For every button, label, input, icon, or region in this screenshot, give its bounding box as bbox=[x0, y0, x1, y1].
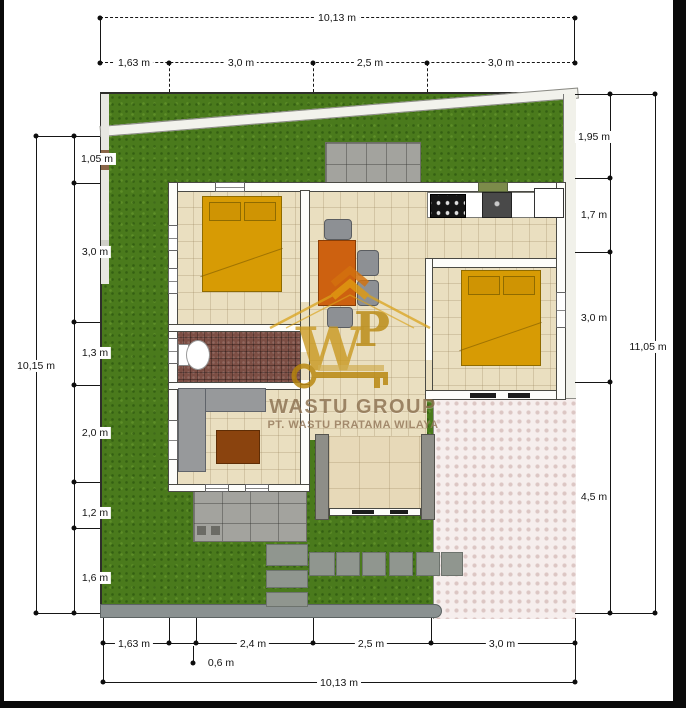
dim-dot bbox=[72, 181, 77, 186]
dim-label: 3,0 m bbox=[225, 57, 257, 69]
floor-plan-canvas: W P WASTU GROUP PT. WASTU PRATAMA WILAYA… bbox=[0, 0, 686, 708]
dim-ext bbox=[169, 618, 170, 643]
window-tick bbox=[390, 510, 408, 514]
dim-label: 3,0 m bbox=[485, 57, 517, 69]
dim-dot bbox=[98, 61, 103, 66]
terrace-mat bbox=[211, 526, 220, 535]
dim-label: 1,6 m bbox=[79, 572, 111, 584]
dim-dot bbox=[167, 641, 172, 646]
dim-label: 1,63 m bbox=[115, 57, 153, 69]
dim-dot bbox=[425, 61, 430, 66]
dim-tick bbox=[575, 382, 610, 383]
dim-ext bbox=[574, 17, 575, 62]
wastu-logo-icon: W P bbox=[258, 266, 448, 401]
dim-dot bbox=[608, 250, 613, 255]
dim-label-left-total: 10,15 m bbox=[14, 360, 58, 372]
watermark: W P WASTU GROUP PT. WASTU PRATAMA WILAYA bbox=[250, 262, 460, 452]
window-tick bbox=[470, 393, 496, 398]
dim-ext bbox=[196, 618, 197, 643]
stepping-stone bbox=[336, 552, 360, 576]
window-tick bbox=[352, 510, 374, 514]
dim-dot bbox=[72, 611, 77, 616]
dim-ext bbox=[313, 618, 314, 643]
window bbox=[245, 484, 269, 492]
dim-dot bbox=[72, 526, 77, 531]
window bbox=[556, 292, 566, 328]
pillow bbox=[244, 202, 276, 221]
dim-label: 2,0 m bbox=[79, 427, 111, 439]
stepping-stone bbox=[441, 552, 463, 576]
dim-label: 2,4 m bbox=[237, 638, 269, 650]
dim-dot bbox=[653, 92, 658, 97]
dim-dot bbox=[72, 383, 77, 388]
garden-step bbox=[266, 570, 308, 588]
dim-line-left-total bbox=[36, 136, 37, 613]
stepping-stone bbox=[309, 552, 335, 576]
dim-dot bbox=[72, 134, 77, 139]
window bbox=[168, 225, 178, 251]
dim-line-right-segments bbox=[610, 94, 611, 613]
bottom-edge-bar bbox=[0, 701, 686, 708]
dim-tick bbox=[74, 482, 100, 483]
window bbox=[205, 484, 229, 492]
dim-dot bbox=[34, 611, 39, 616]
dim-dot bbox=[311, 641, 316, 646]
window-tick bbox=[508, 393, 530, 398]
stepping-stone bbox=[362, 552, 386, 576]
dim-ext bbox=[100, 17, 101, 62]
dim-label: 1,05 m bbox=[78, 153, 116, 165]
front-patio bbox=[325, 142, 421, 184]
dim-dot bbox=[98, 16, 103, 21]
dim-dot bbox=[573, 641, 578, 646]
dim-label: 1,3 m bbox=[79, 347, 111, 359]
dim-label: 1,7 m bbox=[578, 209, 610, 221]
dim-line-right-total bbox=[655, 94, 656, 613]
window bbox=[168, 268, 178, 294]
dim-dot bbox=[72, 320, 77, 325]
dim-tick bbox=[575, 178, 610, 179]
dim-tick bbox=[36, 613, 100, 614]
dim-tick bbox=[575, 252, 610, 253]
key-tooth bbox=[383, 378, 388, 385]
dim-dot bbox=[311, 61, 316, 66]
dim-label: 2,5 m bbox=[355, 638, 387, 650]
dim-label: 1,63 m bbox=[115, 638, 153, 650]
window bbox=[168, 420, 178, 460]
dim-drop bbox=[169, 63, 170, 92]
dim-dot bbox=[429, 641, 434, 646]
dim-dot bbox=[573, 680, 578, 685]
pillow bbox=[503, 276, 535, 295]
dim-ext bbox=[575, 618, 576, 682]
dim-dot bbox=[608, 92, 613, 97]
dim-drop bbox=[313, 63, 314, 92]
dim-label-bottom-sub: 0,6 m bbox=[205, 657, 237, 669]
pillow bbox=[209, 202, 241, 221]
dim-ext bbox=[103, 618, 104, 682]
dim-tick bbox=[36, 136, 100, 137]
dim-dot bbox=[101, 641, 106, 646]
key-tooth bbox=[374, 378, 380, 388]
dim-tick bbox=[74, 385, 100, 386]
dim-label-top-total: 10,13 m bbox=[315, 12, 359, 24]
dim-line-left-segments bbox=[74, 136, 75, 613]
dim-label: 3,0 m bbox=[79, 246, 111, 258]
dim-dot bbox=[608, 611, 613, 616]
refrigerator bbox=[534, 188, 564, 218]
dim-label: 2,5 m bbox=[354, 57, 386, 69]
dim-tick bbox=[74, 528, 100, 529]
dim-dot bbox=[191, 661, 196, 666]
sink bbox=[482, 192, 512, 218]
dim-dot bbox=[167, 61, 172, 66]
dim-tick bbox=[74, 322, 100, 323]
garden-step bbox=[266, 544, 308, 566]
terrace-mat bbox=[197, 526, 206, 535]
dim-dot bbox=[573, 16, 578, 21]
stepping-stone bbox=[389, 552, 413, 576]
sofa-side bbox=[178, 388, 206, 472]
dim-dot bbox=[608, 380, 613, 385]
stepping-stone bbox=[416, 552, 440, 576]
dim-drop bbox=[427, 63, 428, 92]
watermark-company: PT. WASTU PRATAMA WILAYA bbox=[248, 419, 458, 431]
dim-dot bbox=[573, 61, 578, 66]
dim-label-right-total: 11,05 m bbox=[626, 341, 669, 353]
dim-tick bbox=[74, 183, 100, 184]
dim-tick bbox=[575, 94, 655, 95]
ribbon-band bbox=[318, 365, 384, 371]
dim-label: 1,95 m bbox=[575, 131, 613, 143]
left-edge-bar bbox=[0, 0, 4, 708]
watermark-brand: WASTU GROUP bbox=[248, 396, 458, 419]
dim-label: 3,0 m bbox=[578, 312, 610, 324]
toilet-bowl bbox=[186, 340, 210, 370]
garden-step bbox=[266, 592, 308, 607]
dim-dot bbox=[653, 611, 658, 616]
right-edge-bar bbox=[673, 0, 686, 708]
key-shaft bbox=[314, 372, 388, 378]
dim-tick bbox=[575, 613, 655, 614]
dim-dot bbox=[34, 134, 39, 139]
window bbox=[168, 338, 178, 364]
dim-label: 4,5 m bbox=[578, 491, 610, 503]
dim-dot bbox=[101, 680, 106, 685]
window-planter-box bbox=[478, 182, 508, 192]
pillow bbox=[468, 276, 500, 295]
dim-label: 3,0 m bbox=[486, 638, 518, 650]
dim-label-bottom-total: 10,13 m bbox=[317, 677, 361, 689]
dim-dot bbox=[608, 176, 613, 181]
dim-dot bbox=[72, 480, 77, 485]
dim-dot bbox=[194, 641, 199, 646]
monogram-p: P bbox=[354, 302, 390, 358]
bed-bedroom2 bbox=[461, 270, 541, 366]
dining-chair bbox=[324, 219, 352, 240]
dim-label: 1,2 m bbox=[79, 507, 111, 519]
wall-living-bottom bbox=[168, 484, 310, 492]
window bbox=[215, 182, 245, 192]
dim-ext bbox=[431, 618, 432, 643]
stove bbox=[430, 194, 466, 218]
